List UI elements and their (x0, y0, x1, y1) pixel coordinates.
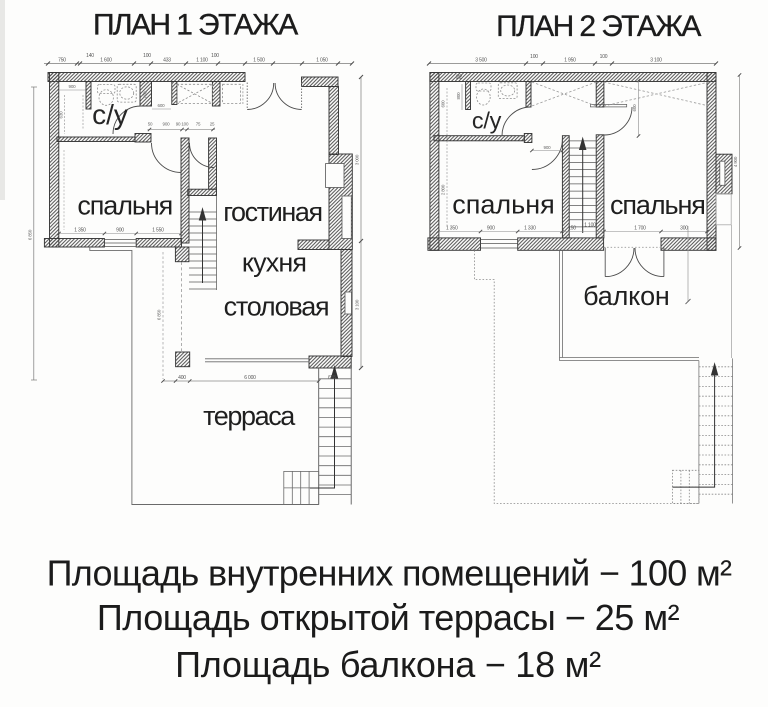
svg-text:спальня: спальня (77, 191, 172, 221)
svg-text:гостиная: гостиная (223, 197, 322, 227)
svg-text:3 100: 3 100 (355, 299, 360, 310)
svg-text:300: 300 (680, 226, 688, 232)
svg-text:1 500: 1 500 (253, 58, 265, 64)
svg-text:433: 433 (163, 58, 171, 64)
svg-text:630: 630 (59, 111, 64, 119)
svg-text:1 050: 1 050 (316, 58, 328, 64)
svg-text:800: 800 (456, 92, 461, 100)
svg-text:балкон: балкон (583, 281, 669, 311)
svg-text:3 500: 3 500 (475, 58, 487, 64)
svg-text:900: 900 (163, 122, 171, 127)
svg-text:600: 600 (441, 100, 446, 108)
svg-text:140: 140 (86, 53, 94, 59)
svg-text:спальня: спальня (610, 190, 705, 220)
svg-text:1 100: 1 100 (584, 223, 596, 229)
svg-text:1 700: 1 700 (634, 226, 646, 232)
svg-text:столовая: столовая (224, 292, 329, 322)
svg-text:700: 700 (143, 91, 148, 99)
svg-text:ПЛАН 1 ЭТАЖА: ПЛАН 1 ЭТАЖА (93, 8, 298, 41)
svg-text:терраса: терраса (203, 401, 296, 431)
svg-text:50: 50 (148, 122, 153, 127)
svg-text:100: 100 (211, 53, 219, 59)
svg-text:спальня: спальня (452, 190, 555, 220)
svg-text:1 350: 1 350 (446, 226, 458, 232)
svg-text:100: 100 (530, 54, 538, 60)
svg-text:750: 750 (58, 58, 66, 64)
svg-text:4 900: 4 900 (733, 156, 738, 167)
svg-text:25: 25 (210, 122, 215, 127)
svg-text:2 800: 2 800 (441, 184, 446, 195)
svg-text:1 330: 1 330 (524, 226, 536, 232)
svg-text:1 350: 1 350 (74, 228, 86, 234)
svg-text:6 850: 6 850 (157, 309, 162, 320)
svg-text:400: 400 (178, 375, 186, 381)
svg-text:1 600: 1 600 (100, 58, 112, 64)
svg-text:кухня: кухня (242, 248, 306, 278)
svg-text:900: 900 (487, 226, 495, 232)
svg-text:75: 75 (196, 122, 201, 127)
svg-text:3 000: 3 000 (355, 154, 360, 165)
svg-text:22: 22 (456, 75, 462, 81)
svg-text:Площадь балкона − 18 м²: Площадь балкона − 18 м² (175, 644, 601, 685)
svg-text:1 100: 1 100 (196, 58, 208, 64)
svg-text:Площадь внутренних помещений: Площадь внутренних помещений − 100 м² (47, 553, 732, 594)
svg-text:6 000: 6 000 (244, 375, 256, 381)
svg-text:с/у: с/у (472, 108, 502, 134)
svg-text:Площадь открытой террасы −: Площадь открытой террасы − 25 м² (97, 597, 680, 638)
svg-text:100: 100 (600, 54, 608, 60)
svg-text:900: 900 (69, 84, 77, 89)
svg-text:655: 655 (328, 375, 336, 381)
svg-text:ПЛАН 2 ЭТАЖА: ПЛАН 2 ЭТАЖА (496, 10, 701, 43)
svg-text:600: 600 (632, 104, 637, 112)
svg-text:6 850: 6 850 (28, 229, 33, 240)
svg-text:1 950: 1 950 (564, 58, 576, 64)
svg-text:90 100: 90 100 (176, 122, 189, 127)
svg-text:600: 600 (158, 103, 166, 108)
svg-text:с/у: с/у (92, 99, 128, 130)
svg-text:3 100: 3 100 (650, 58, 662, 64)
svg-text:150: 150 (568, 226, 576, 232)
svg-text:900: 900 (544, 145, 552, 150)
svg-text:900: 900 (116, 228, 124, 234)
svg-text:1 550: 1 550 (152, 228, 164, 234)
svg-text:100: 100 (143, 53, 151, 59)
